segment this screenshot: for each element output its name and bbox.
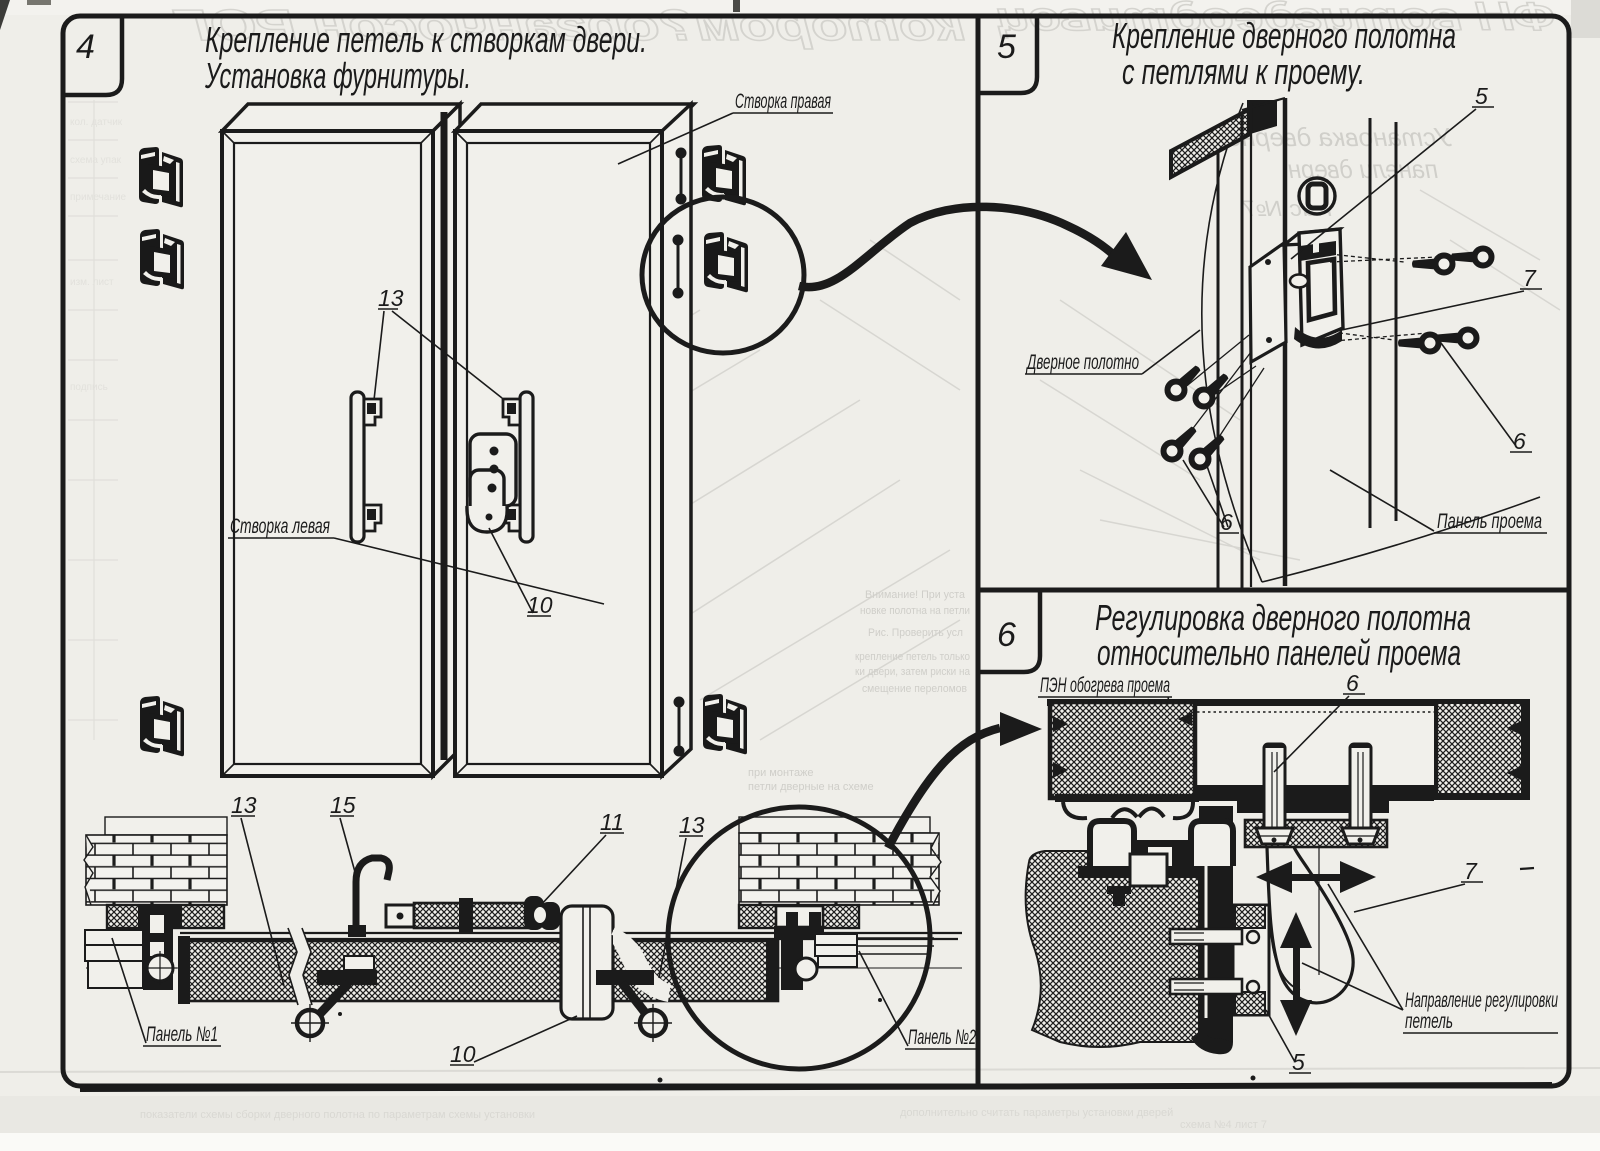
svg-text:схема №4 лист 7: схема №4 лист 7 [1180, 1119, 1267, 1131]
svg-text:Створка правая: Створка правая [735, 90, 831, 113]
svg-text:Панель проема: Панель проема [1437, 510, 1542, 533]
svg-text:4: 4 [76, 28, 95, 66]
svg-text:7: 7 [1523, 265, 1537, 291]
svg-text:15: 15 [330, 792, 356, 818]
svg-text:Внимание! При уста: Внимание! При уста [865, 589, 966, 601]
svg-text:ки двери, затем риски на: ки двери, затем риски на [855, 666, 971, 678]
svg-text:Рис. Проверить усл: Рис. Проверить усл [868, 627, 963, 639]
svg-text:7: 7 [1464, 858, 1478, 884]
svg-text:петли дверные на схеме: петли дверные на схеме [748, 781, 874, 793]
svg-text:6: 6 [997, 616, 1016, 654]
svg-text:подпись: подпись [70, 382, 108, 393]
svg-text:новке полотна на петли: новке полотна на петли [860, 605, 970, 617]
svg-text:кол. датчик: кол. датчик [70, 117, 123, 128]
svg-text:6: 6 [1346, 670, 1359, 696]
svg-text:5: 5 [997, 28, 1016, 66]
svg-text:Крепление дверного полотна: Крепление дверного полотна [1112, 15, 1456, 56]
svg-text:5: 5 [1475, 83, 1488, 109]
svg-text:10: 10 [450, 1041, 476, 1067]
svg-text:6: 6 [1513, 428, 1526, 454]
svg-text:примечание: примечание [70, 192, 127, 203]
svg-text:13: 13 [231, 792, 257, 818]
svg-text:Панель №1: Панель №1 [146, 1023, 218, 1046]
svg-text:Направление регулировки: Направление регулировки [1405, 989, 1558, 1012]
svg-text:относительно панелей проема: относительно панелей проема [1097, 632, 1461, 673]
svg-text:петель: петель [1405, 1010, 1453, 1033]
svg-text:Дверное полотно: Дверное полотно [1026, 351, 1139, 374]
svg-text:схема упак: схема упак [70, 155, 122, 166]
svg-text:Створка левая: Створка левая [230, 515, 330, 538]
svg-text:Панель №2: Панель №2 [908, 1026, 976, 1049]
svg-text:дополнительно считать параметр: дополнительно считать параметры установк… [900, 1107, 1173, 1119]
svg-text:11: 11 [600, 809, 624, 835]
svg-text:Установка фурнитуры.: Установка фурнитуры. [204, 55, 471, 96]
svg-text:смещение переломов: смещение переломов [862, 683, 967, 695]
svg-text:изм. лист: изм. лист [70, 277, 114, 288]
svg-text:Крепление петель к створкам дв: Крепление петель к створкам двери. [205, 19, 647, 60]
svg-text:13: 13 [679, 812, 705, 838]
svg-text:крепление петель только: крепление петель только [855, 651, 970, 663]
svg-text:при монтаже: при монтаже [748, 767, 814, 779]
svg-text:с петлями к проему.: с петлями к проему. [1122, 51, 1365, 92]
svg-text:5: 5 [1292, 1049, 1305, 1075]
svg-text:13: 13 [378, 285, 404, 311]
svg-text:10: 10 [527, 592, 553, 618]
svg-text:ПЭН обогрева проема: ПЭН обогрева проема [1040, 674, 1170, 697]
svg-text:показатели схемы сборки дверно: показатели схемы сборки дверного полотна… [140, 1109, 535, 1121]
